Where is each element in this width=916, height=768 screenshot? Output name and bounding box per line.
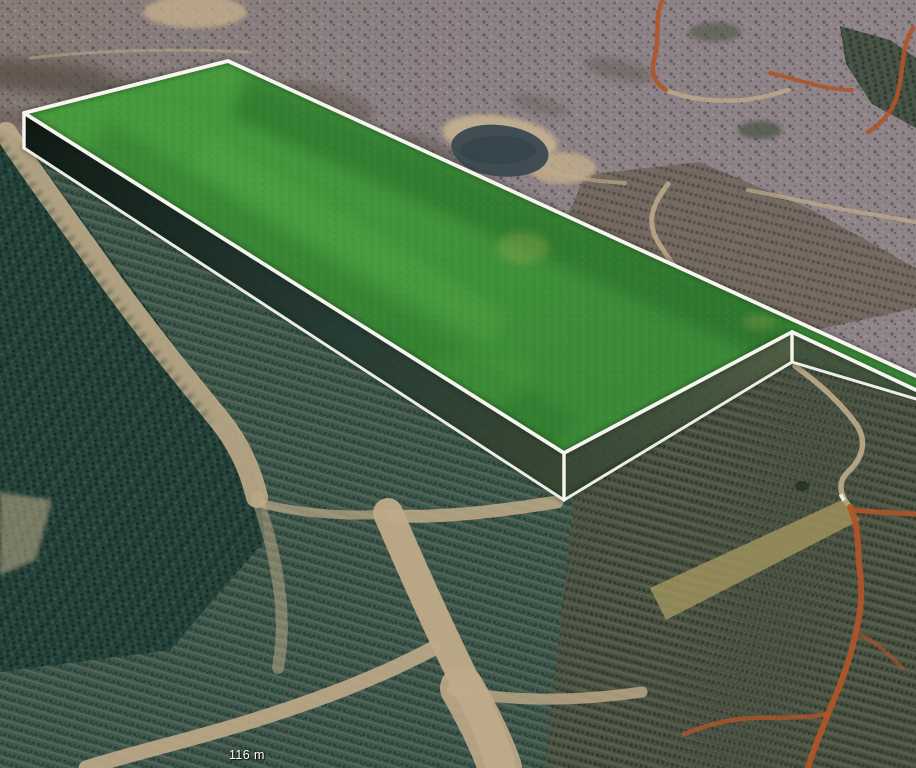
map-viewport[interactable]: 116 m: [0, 0, 916, 768]
dark-pit: [795, 481, 809, 491]
